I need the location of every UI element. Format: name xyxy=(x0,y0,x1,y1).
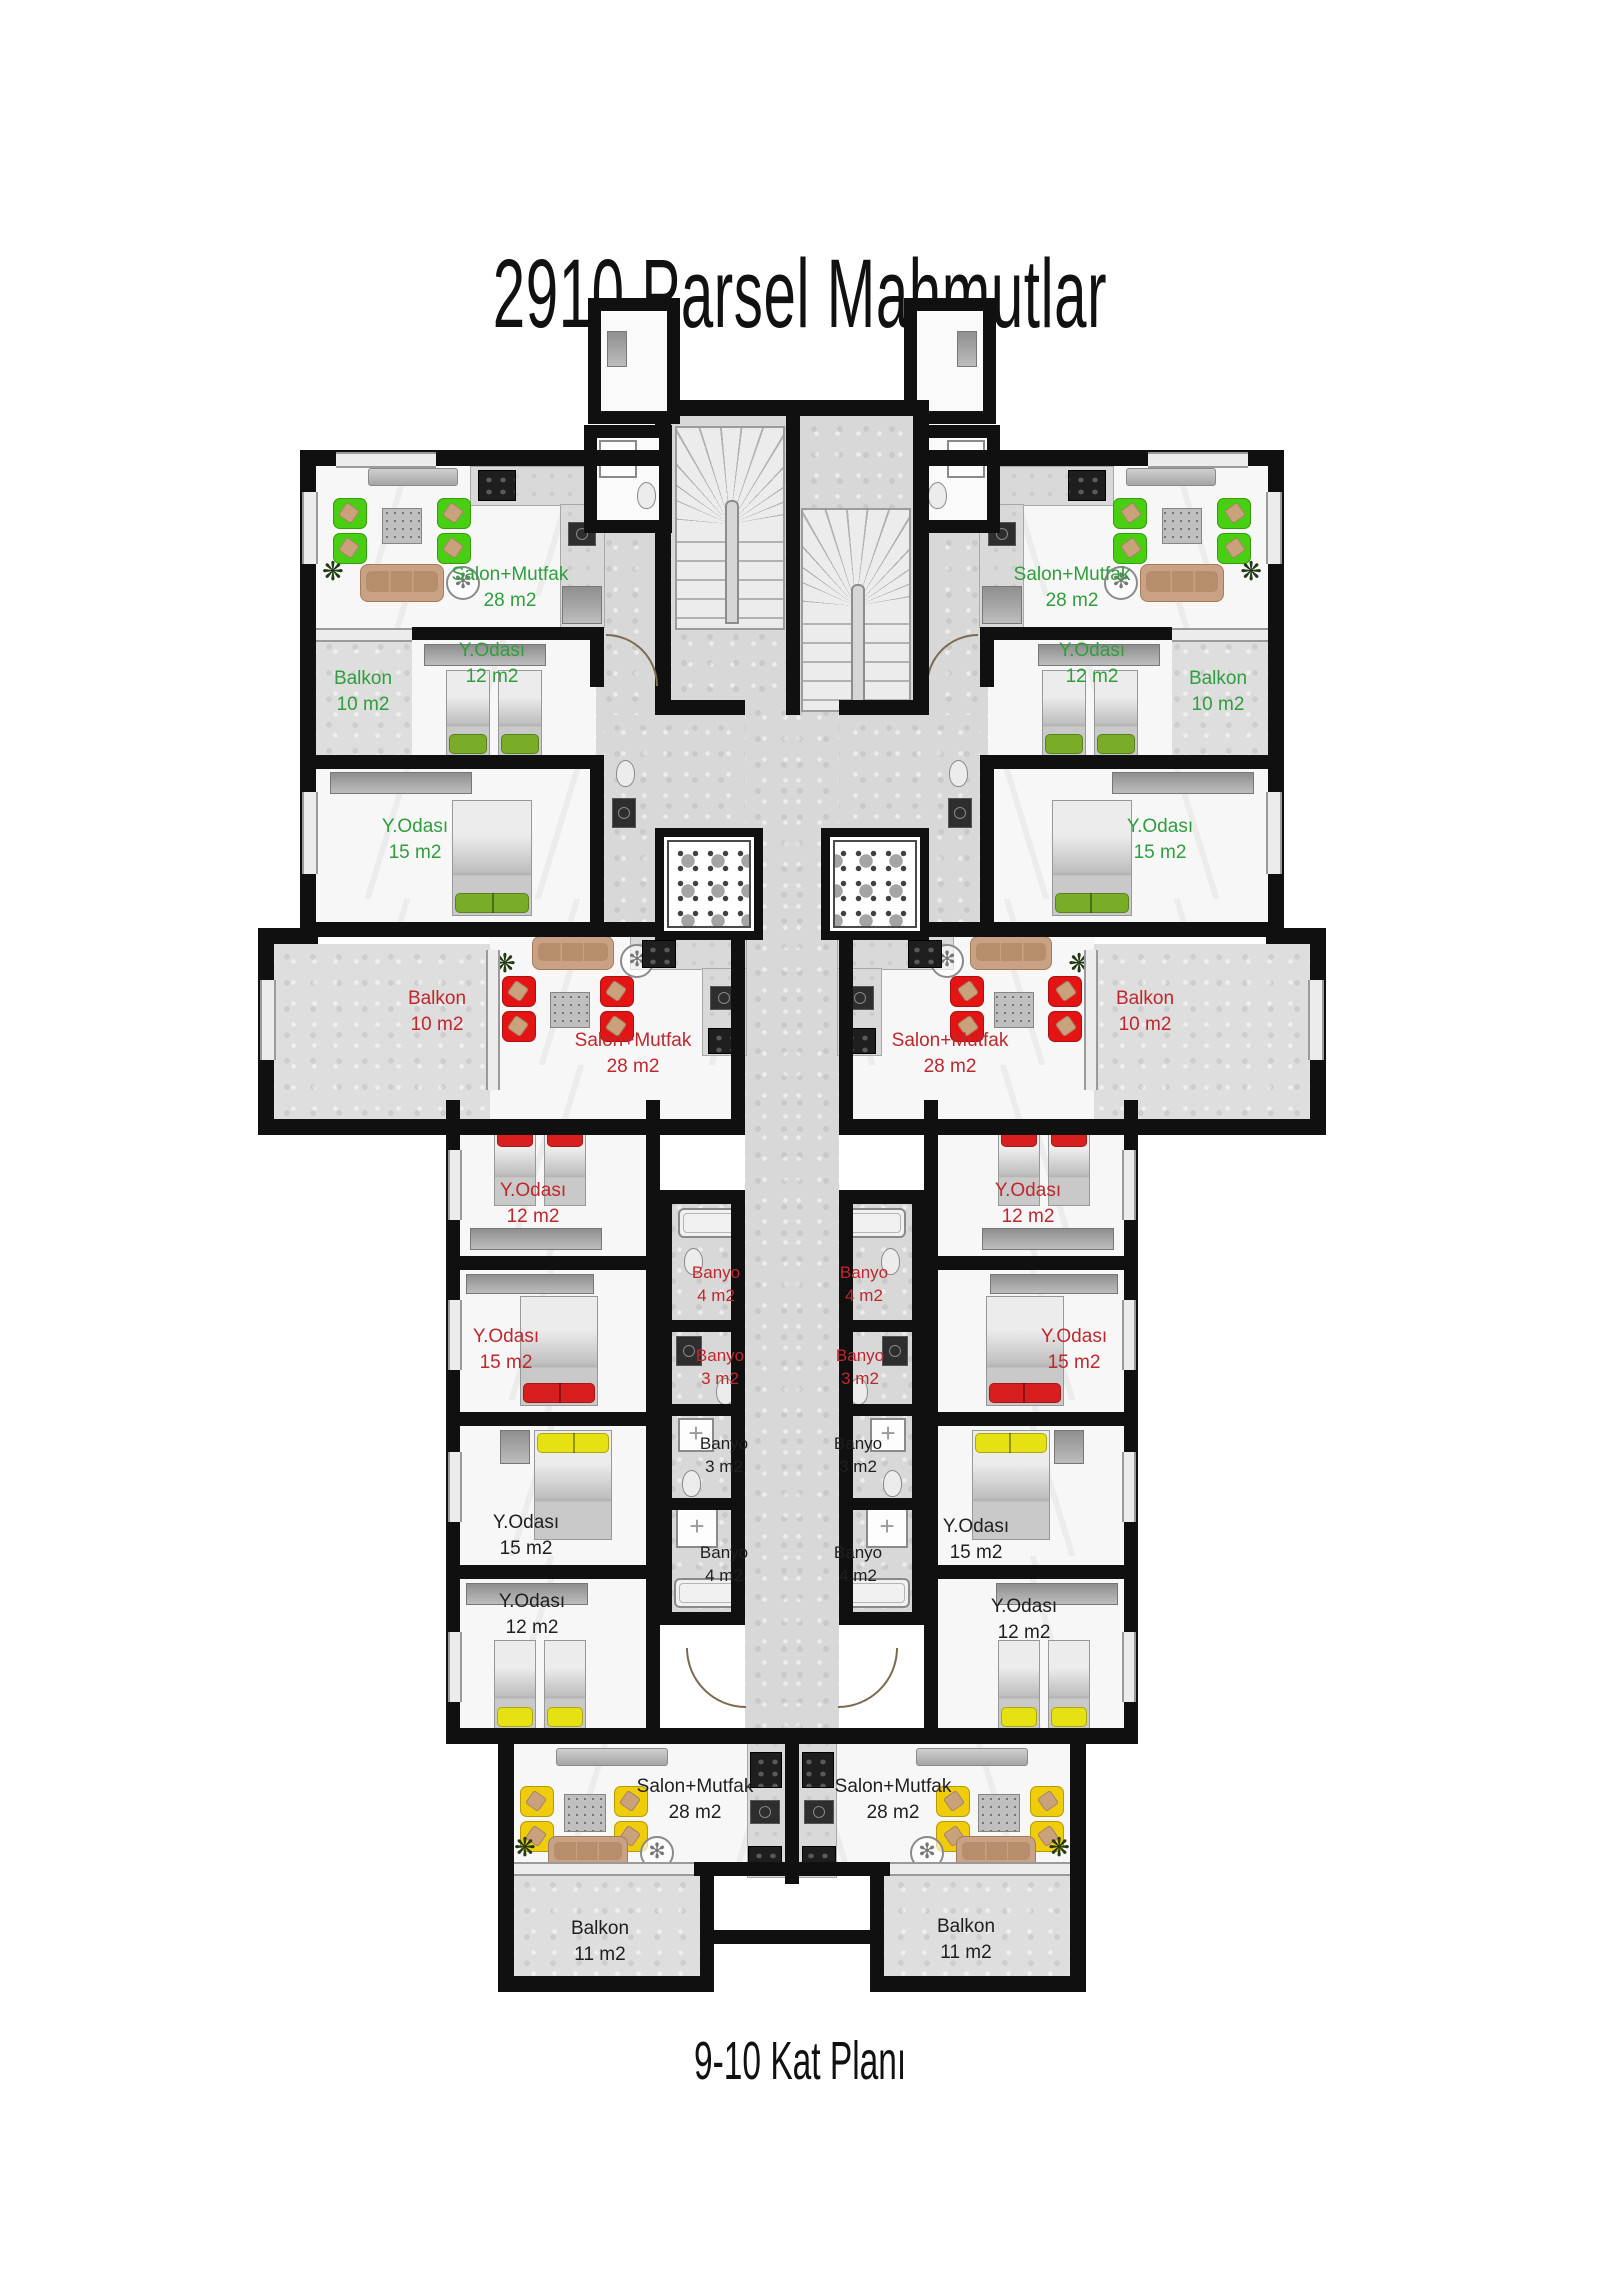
room-label-yodasi12-mid-left: Y.Odası12 m2 xyxy=(500,1178,566,1230)
room-label-yodasi12-top-left: Y.Odası12 m2 xyxy=(459,638,525,690)
room-label-yodasi12-black-left: Y.Odası12 m2 xyxy=(499,1589,565,1641)
room-label-yodasi15-upper-right: Y.Odası15 m2 xyxy=(1127,814,1193,866)
room-label-yodasi15-black-right: Y.Odası15 m2 xyxy=(943,1514,1009,1566)
room-label-yodasi15-upper-left: Y.Odası15 m2 xyxy=(382,814,448,866)
room-label-salon-mid-right: Salon+Mutfak28 m2 xyxy=(892,1028,1009,1080)
room-label-balkon10-top-left: Balkon10 m2 xyxy=(334,666,392,718)
room-label-salon-bottom-right: Salon+Mutfak28 m2 xyxy=(835,1774,952,1826)
room-label-yodasi12-black-right: Y.Odası12 m2 xyxy=(991,1594,1057,1646)
room-label-yodasi15-red-right: Y.Odası15 m2 xyxy=(1041,1324,1107,1376)
room-label-yodasi12-top-right: Y.Odası12 m2 xyxy=(1059,638,1125,690)
room-label-banyo4-black-left: Banyo4 m2 xyxy=(700,1541,748,1587)
room-labels: Salon+Mutfak28 m2Y.Odası12 m2Balkon10 m2… xyxy=(0,0,1600,2286)
room-label-balkon10-mid-left: Balkon10 m2 xyxy=(408,986,466,1038)
room-label-salon-top-right: Salon+Mutfak28 m2 xyxy=(1014,562,1131,614)
room-label-yodasi15-red-left: Y.Odası15 m2 xyxy=(473,1324,539,1376)
room-label-banyo3-red-right: Banyo3 m2 xyxy=(836,1344,884,1390)
room-label-yodasi15-black-left: Y.Odası15 m2 xyxy=(493,1510,559,1562)
room-label-salon-top-left: Salon+Mutfak28 m2 xyxy=(452,562,569,614)
room-label-salon-bottom-left: Salon+Mutfak28 m2 xyxy=(637,1774,754,1826)
room-label-banyo4-red-right: Banyo4 m2 xyxy=(840,1261,888,1307)
room-label-salon-mid-left: Salon+Mutfak28 m2 xyxy=(575,1028,692,1080)
room-label-balkon10-mid-right: Balkon10 m2 xyxy=(1116,986,1174,1038)
room-label-banyo3-black-right: Banyo3 m2 xyxy=(834,1432,882,1478)
room-label-banyo4-black-right: Banyo4 m2 xyxy=(834,1541,882,1587)
room-label-balkon10-top-right: Balkon10 m2 xyxy=(1189,666,1247,718)
room-label-yodasi12-mid-right: Y.Odası12 m2 xyxy=(995,1178,1061,1230)
room-label-banyo3-red-left: Banyo3 m2 xyxy=(696,1344,744,1390)
floor-plan-canvas: 2910 Parsel Mahmutlar ✻ ❋ xyxy=(0,0,1600,2286)
room-label-balkon11-left: Balkon11 m2 xyxy=(571,1916,629,1968)
room-label-balkon11-right: Balkon11 m2 xyxy=(937,1914,995,1966)
room-label-banyo4-red-left: Banyo4 m2 xyxy=(692,1261,740,1307)
room-label-banyo3-black-left: Banyo3 m2 xyxy=(700,1432,748,1478)
